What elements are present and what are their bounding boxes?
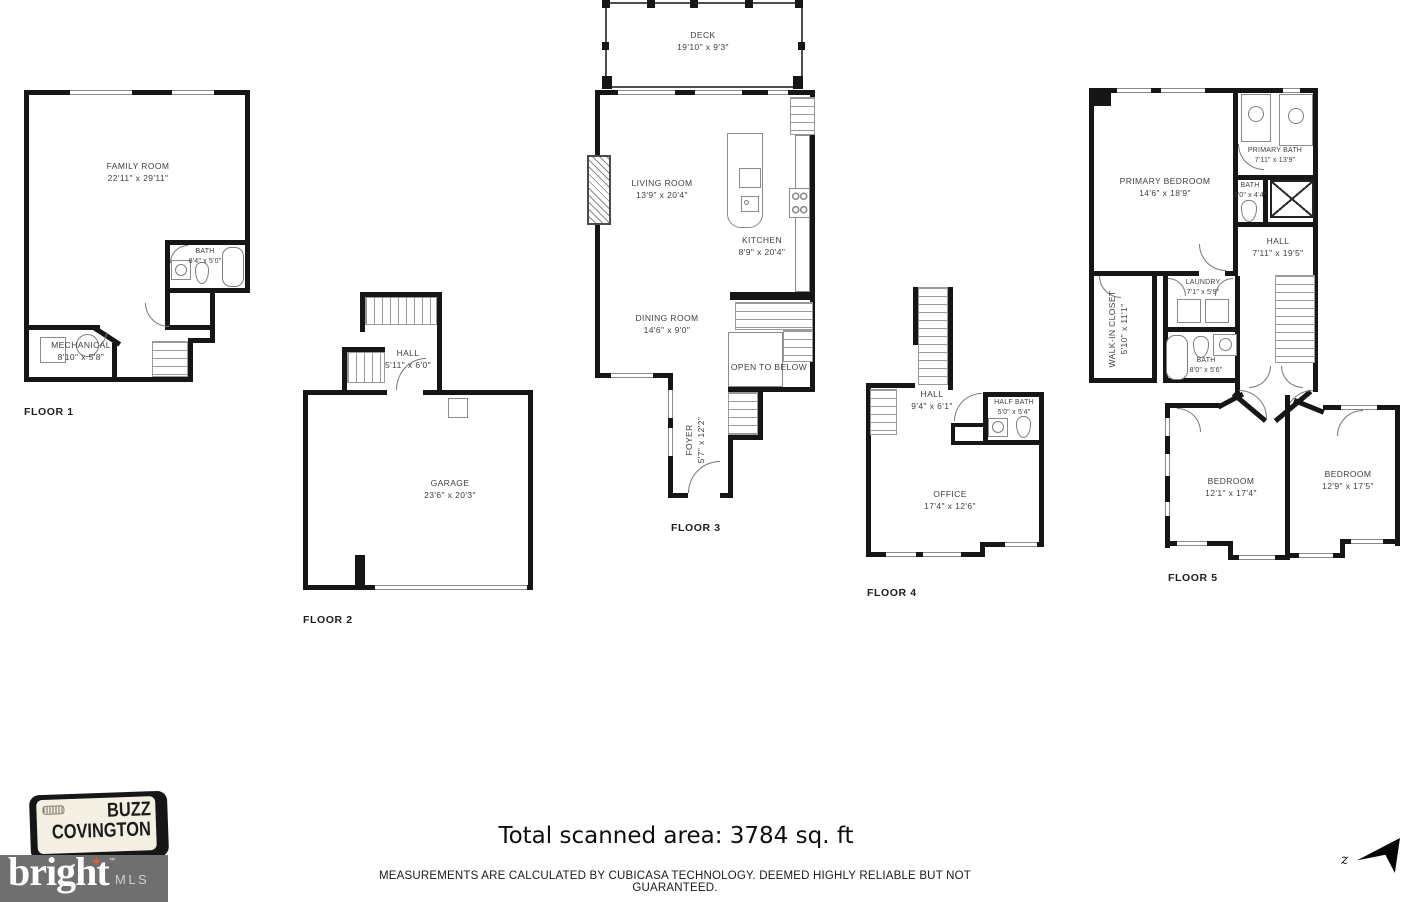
sink-basin: [1288, 108, 1304, 124]
door-opening: [387, 390, 423, 395]
room-dims: 7'1" x 5'9": [1186, 288, 1221, 298]
window: [886, 552, 916, 557]
deck-post: [793, 76, 803, 89]
north-arrow-icon: [1357, 838, 1400, 873]
room-dims: 5'0" x 5'4": [994, 408, 1034, 418]
wall: [24, 90, 250, 95]
floor-3-plan: DECK 19'10" x 9'3" LIVING ROOM 13'9" x 2…: [593, 0, 823, 535]
room-label-garage: GARAGE 23'6" x 20'3": [424, 478, 476, 502]
room-name: DINING ROOM: [636, 313, 699, 325]
stairs: [152, 341, 188, 377]
garage-door: [375, 585, 527, 590]
stairs: [783, 330, 813, 362]
compass-letter: z: [1341, 852, 1348, 868]
door-arc: [145, 303, 169, 327]
sink-basin: [1248, 106, 1264, 122]
stairs: [365, 297, 437, 325]
wall: [983, 440, 1044, 445]
room-label-foyer: FOYER 5'7" x 12'2": [684, 417, 708, 464]
wall: [758, 392, 763, 440]
wall: [1163, 327, 1240, 332]
room-dims: 8'10" x 5'8": [51, 352, 111, 364]
deck-post: [690, 0, 698, 8]
disclaimer-text: MEASUREMENTS ARE CALCULATED BY CUBICASA …: [375, 870, 975, 894]
door-arc: [1168, 278, 1186, 296]
wall: [303, 390, 308, 590]
room-dims: 19'10" x 9'3": [677, 42, 729, 54]
door-arc: [1281, 366, 1303, 388]
room-name: BEDROOM: [1322, 469, 1374, 481]
floor-4-plan: HALL 9'4" x 6'1" HALF BATH 5'0" x 5'4" O…: [866, 285, 1044, 565]
wall: [948, 287, 953, 390]
room-label-laundry: LAUNDRY 7'1" x 5'9": [1186, 278, 1221, 298]
deck-post: [647, 0, 655, 8]
room-dims: 23'6" x 20'3": [424, 490, 476, 502]
room-name: FOYER: [684, 417, 696, 464]
bathtub-fixture: [222, 247, 244, 287]
kitchen-counter: [790, 97, 815, 135]
window: [668, 428, 673, 456]
room-label-bath-small: BATH 3'0" x 4'4": [1234, 181, 1267, 201]
room-dims: 7'11" x 13'9": [1248, 156, 1302, 166]
window: [923, 552, 961, 557]
window: [1351, 539, 1383, 544]
wall: [528, 390, 533, 590]
toilet-fixture: [1241, 200, 1257, 222]
stairs: [1275, 275, 1315, 363]
door-arc: [1199, 244, 1226, 271]
room-label-primary-bath: PRIMARY BATH 7'11" x 13'9": [1248, 146, 1302, 166]
room-name: OFFICE: [924, 489, 976, 501]
deck-post: [602, 76, 612, 89]
floor-2-plan: HALL 5'11" x 6'0" GARAGE 23'6" x 20'3": [303, 292, 533, 590]
room-dims: 7'11" x 19'5": [1252, 248, 1303, 260]
room-label-walk-in-closet: WALK-IN CLOSET 5'10" x 11'1": [1107, 290, 1131, 367]
room-dims: 17'4" x 12'6": [924, 501, 976, 513]
floor-3-caption: FLOOR 3: [671, 522, 721, 534]
window: [1283, 88, 1300, 93]
window: [768, 90, 788, 95]
room-name: FAMILY ROOM: [107, 161, 170, 173]
room-label-kitchen: KITCHEN 8'9" x 20'4": [739, 235, 786, 259]
room-dims: 8'4" x 5'0": [189, 257, 222, 267]
deck-post: [795, 0, 803, 8]
room-dims: 12'1" x 17'4": [1205, 488, 1257, 500]
room-label-family-room: FAMILY ROOM 22'11" x 29'11": [107, 161, 170, 185]
wall: [24, 90, 29, 382]
dryer-fixture: [1205, 299, 1229, 323]
window: [1165, 454, 1170, 476]
deck-post: [602, 0, 610, 8]
room-name: GARAGE: [424, 478, 476, 490]
stairs: [735, 302, 813, 330]
room-dims: 9'4" x 6'1": [911, 401, 953, 413]
room-label-living-room: LIVING ROOM 13'9" x 20'4": [631, 178, 692, 202]
room-dims: 14'6" x 9'0": [636, 325, 699, 337]
wall: [595, 90, 600, 378]
island-faucet: [744, 200, 749, 205]
floor-4-caption: FLOOR 4: [867, 587, 917, 599]
room-name: PRIMARY BATH: [1248, 146, 1302, 156]
room-dims: 3'0" x 4'4": [1234, 191, 1267, 201]
room-label-half-bath: HALF BATH 5'0" x 5'4": [994, 398, 1034, 418]
room-label-hall: HALL 7'11" x 19'5": [1252, 236, 1303, 260]
floor-5-plan: PRIMARY BATH 7'11" x 13'9" BATH 3'0" x 4…: [1089, 86, 1400, 566]
window: [668, 390, 673, 418]
wall: [728, 440, 733, 498]
wall: [24, 377, 193, 382]
agent-logo-panel: BUZZ COVINGTON: [36, 796, 157, 854]
room-name: MECHANICAL: [51, 340, 111, 352]
total-scanned-area-text: Total scanned area: 3784 sq. ft: [376, 823, 976, 849]
wall: [1089, 378, 1157, 383]
sink-basin: [175, 264, 187, 276]
door-arc: [954, 393, 982, 421]
sink-basin: [1219, 338, 1232, 351]
room-name: KITCHEN: [739, 235, 786, 247]
room-name: LIVING ROOM: [631, 178, 692, 190]
wall: [355, 555, 365, 590]
north-arrow: z: [1340, 836, 1402, 878]
wall: [983, 392, 1044, 397]
agent-name-line2: COVINGTON: [52, 820, 152, 844]
window: [1005, 542, 1037, 547]
room-label-office: OFFICE 17'4" x 12'6": [924, 489, 976, 513]
window: [1165, 502, 1170, 516]
deck-post: [745, 0, 753, 8]
window: [1161, 88, 1205, 93]
room-name: BATH: [189, 247, 222, 257]
stove-fixture: [789, 188, 810, 218]
deck-post: [602, 42, 609, 50]
window: [1117, 88, 1151, 93]
room-dims: 8'0" x 5'6": [1190, 366, 1223, 376]
wall: [188, 338, 193, 382]
room-name: PRIMARY BEDROOM: [1120, 176, 1211, 188]
room-name: BATH: [1234, 181, 1267, 191]
floor-1-caption: FLOOR 1: [24, 406, 74, 418]
window: [1239, 555, 1275, 560]
bright-mls-logo: bright ✦ ™ MLS: [0, 855, 168, 902]
wall: [165, 240, 170, 293]
room-name: DECK: [677, 30, 729, 42]
entry-door-arc: [688, 461, 720, 493]
agent-name: BUZZ COVINGTON: [29, 799, 151, 844]
mls-wordmark: MLS: [115, 872, 149, 887]
wall: [1152, 276, 1157, 383]
wall: [165, 325, 215, 330]
star-icon: ✦: [91, 854, 102, 870]
door-arc: [1177, 408, 1201, 432]
room-label-primary-bedroom: PRIMARY BEDROOM 14'6" x 18'9": [1120, 176, 1211, 200]
island-sink: [739, 168, 761, 188]
room-dims: 5'7" x 12'2": [696, 417, 708, 464]
stairs: [347, 352, 385, 383]
floor-1-plan: FAMILY ROOM 22'11" x 29'11" BATH 8'4" x …: [24, 88, 250, 384]
room-label-bedroom-right: BEDROOM 12'9" x 17'5": [1322, 469, 1374, 493]
wall: [1233, 222, 1318, 227]
wall: [165, 288, 250, 293]
room-name: HALL: [911, 389, 953, 401]
room-name: HALL: [1252, 236, 1303, 248]
room-name: BEDROOM: [1205, 476, 1257, 488]
wall: [1089, 88, 1094, 383]
bathtub-fixture: [1166, 335, 1188, 380]
room-name: BATH: [1190, 356, 1223, 366]
room-dims: 22'11" x 29'11": [107, 173, 170, 185]
window: [70, 90, 132, 95]
window: [1177, 541, 1207, 546]
wall: [24, 325, 100, 330]
toilet-fixture: [1016, 416, 1031, 438]
window: [618, 90, 675, 95]
room-label-open-to-below: OPEN TO BELOW: [731, 362, 807, 374]
room-label-bedroom-left: BEDROOM 12'1" x 17'4": [1205, 476, 1257, 500]
room-label-deck: DECK 19'10" x 9'3": [677, 30, 729, 54]
trademark-symbol: ™: [109, 858, 115, 864]
wall: [1165, 403, 1220, 408]
closet-shelving: [870, 389, 897, 435]
room-dims: 14'6" x 18'9": [1120, 188, 1211, 200]
open-to-below-area: [728, 332, 783, 387]
washer-fixture: [1177, 299, 1201, 323]
room-label-dining-room: DINING ROOM 14'6" x 9'0": [636, 313, 699, 337]
skylight-shaft: [1270, 180, 1314, 218]
wall: [866, 383, 915, 388]
window: [695, 90, 742, 95]
window: [1299, 553, 1333, 558]
room-dims: 8'9" x 20'4": [739, 247, 786, 259]
door-opening: [1199, 271, 1225, 276]
wall: [1285, 395, 1290, 560]
door-arc: [1249, 366, 1271, 388]
door-arc: [1337, 410, 1363, 436]
floor-2-caption: FLOOR 2: [303, 614, 353, 626]
room-dims: 5'11" x 6'0": [385, 360, 431, 372]
wall: [245, 90, 250, 293]
wall: [112, 343, 117, 382]
room-name: HALF BATH: [994, 398, 1034, 408]
room-name: WALK-IN CLOSET: [1107, 290, 1119, 367]
door-opening: [688, 493, 720, 498]
room-name: OPEN TO BELOW: [731, 362, 807, 374]
utility-fixture: [448, 398, 468, 418]
wall: [728, 435, 763, 440]
wall: [1395, 405, 1400, 546]
room-name: LAUNDRY: [1186, 278, 1221, 288]
room-label-hall: HALL 5'11" x 6'0": [385, 348, 431, 372]
floorplan-page: FAMILY ROOM 22'11" x 29'11" BATH 8'4" x …: [0, 0, 1402, 902]
floor-5-caption: FLOOR 5: [1168, 572, 1218, 584]
room-dims: 5'10" x 11'1": [1119, 290, 1131, 367]
stairs: [918, 287, 948, 385]
room-dims: 13'9" x 20'4": [631, 190, 692, 202]
room-dims: 12'9" x 17'5": [1322, 481, 1374, 493]
sink-basin: [992, 421, 1004, 433]
closet-box: [951, 423, 987, 445]
room-label-bath: BATH 8'4" x 5'0": [189, 247, 222, 267]
wall: [165, 240, 250, 245]
room-name: HALL: [385, 348, 431, 360]
fireplace: [587, 155, 611, 225]
wall: [437, 292, 442, 395]
wall: [730, 292, 815, 300]
wall: [210, 293, 215, 343]
room-label-hall: HALL 9'4" x 6'1": [911, 389, 953, 413]
window: [1165, 418, 1170, 436]
window: [611, 373, 653, 378]
wall: [1039, 392, 1044, 547]
toilet-fixture: [1193, 336, 1209, 358]
stairs: [728, 392, 758, 435]
deck-post: [798, 42, 805, 50]
room-label-mechanical: MECHANICAL 8'10" x 5'8": [51, 340, 111, 364]
room-label-bath: BATH 8'0" x 5'6": [1190, 356, 1223, 376]
door-arc: [170, 245, 188, 263]
window: [172, 90, 214, 95]
